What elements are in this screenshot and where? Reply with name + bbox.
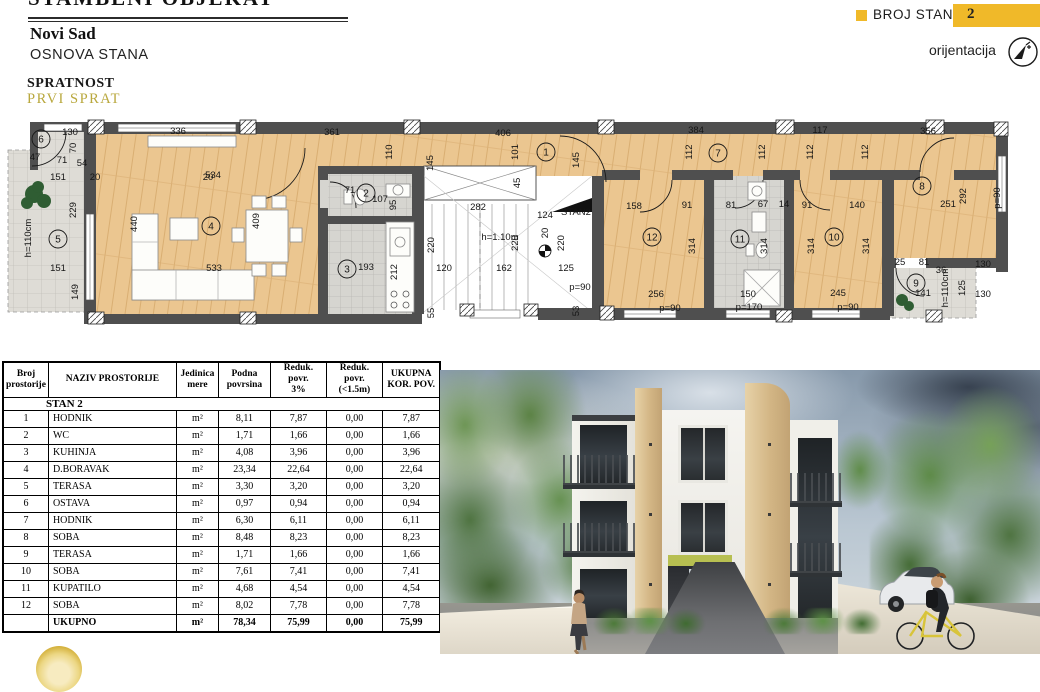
partial-logo-icon: [36, 646, 82, 692]
bushes-right: [758, 608, 888, 634]
dimension-label: p=90: [992, 187, 1003, 208]
table-cell: m²: [176, 529, 218, 546]
table-cell: HODNIK: [48, 410, 176, 427]
table-cell: 0,00: [326, 580, 382, 597]
table-cell: 6,30: [218, 512, 270, 529]
dimension-label: 145: [571, 152, 582, 168]
dimension-label: 81: [726, 200, 737, 211]
dimension-label: 81: [919, 257, 930, 268]
dimension-label: 70: [68, 143, 79, 154]
table-cell: 1,66: [270, 546, 326, 563]
dimension-label: 356: [920, 126, 936, 137]
table-cell: SOBA: [48, 563, 176, 580]
dimension-label: 130: [62, 127, 78, 138]
dimension-label: 406: [495, 128, 511, 139]
room-number: 4: [208, 222, 214, 233]
col-podna: Podna povrsina: [218, 362, 270, 397]
dimension-label: 95: [388, 200, 399, 211]
dimension-label: 245: [830, 288, 846, 299]
dimension-label: p=90: [659, 303, 680, 314]
table-cell: 0,00: [326, 478, 382, 495]
table-cell: HODNIK: [48, 512, 176, 529]
col-naziv: NAZIV PROSTORIJE: [48, 362, 176, 397]
table-cell: 0,00: [326, 512, 382, 529]
dimension-label: 384: [688, 125, 704, 136]
dimension-label: 91: [802, 200, 813, 211]
table-cell: 75,99: [270, 614, 326, 632]
col-jedinica: Jedinica mere: [176, 362, 218, 397]
table-cell: 0,00: [326, 614, 382, 632]
table-cell: 7,78: [382, 597, 440, 614]
table-cell: 4: [3, 461, 48, 478]
dimension-label: h=110cm: [23, 219, 34, 258]
dimension-label: 256: [648, 289, 664, 300]
table-cell: 4,08: [218, 444, 270, 461]
dimension-label: 124: [537, 210, 553, 221]
table-cell: 9: [3, 546, 48, 563]
dimension-label: 20: [203, 172, 214, 183]
table-cell: 1,66: [270, 427, 326, 444]
table-cell: 0,00: [326, 495, 382, 512]
room-number: 11: [735, 235, 746, 246]
dimension-label: 20: [90, 172, 101, 183]
dimension-label: 125: [957, 280, 968, 296]
table-cell: 7,78: [270, 597, 326, 614]
dimension-label: 158: [626, 201, 642, 212]
dimension-label: 533: [206, 263, 222, 274]
dimension-label: 53: [571, 306, 582, 317]
floor-label: SPRATNOST: [27, 76, 114, 92]
header-rule: [28, 17, 348, 19]
clipped-project-title: STAMBENI OBJEKAT: [28, 0, 358, 8]
table-cell: 6,11: [270, 512, 326, 529]
unit-number-label: BROJ STANA: [873, 7, 963, 22]
dimension-label: 145: [425, 155, 436, 171]
dimension-label: 141: [915, 288, 931, 299]
dimension-label: 25: [895, 257, 906, 268]
dimension-label: 71: [345, 185, 356, 196]
table-cell: 0,00: [326, 410, 382, 427]
dimension-label: 251: [940, 199, 956, 210]
unit-number-value: 2: [967, 6, 975, 23]
col-broj: Broj prostorije: [3, 362, 48, 397]
dimension-label: 440: [129, 216, 140, 232]
table-cell: 0,94: [382, 495, 440, 512]
table-cell: 22,64: [382, 461, 440, 478]
dimension-label: h=1.10m: [481, 232, 518, 243]
dimension-label: 67: [758, 199, 769, 210]
dimension-label: 314: [687, 238, 698, 254]
table-cell: 3,20: [270, 478, 326, 495]
table-cell: 1,66: [382, 427, 440, 444]
dimension-label: 220: [426, 237, 437, 253]
table-cell: 4,54: [270, 580, 326, 597]
table-cell: 1: [3, 410, 48, 427]
dimension-label: 110: [384, 144, 395, 159]
table-cell: 0,00: [326, 546, 382, 563]
table-cell: 10: [3, 563, 48, 580]
table-cell: 6,11: [382, 512, 440, 529]
facade-pillar-right: [745, 383, 790, 618]
table-cell: m²: [176, 410, 218, 427]
table-cell: OSTAVA: [48, 495, 176, 512]
dimension-label: p=170: [736, 302, 763, 313]
table-cell: m²: [176, 614, 218, 632]
dimension-label: 101: [510, 144, 521, 160]
dimension-label: 14: [779, 199, 790, 210]
table-cell: 8,23: [270, 529, 326, 546]
dimension-label: 361: [324, 127, 340, 138]
table-cell: 12: [3, 597, 48, 614]
col-ukupna: UKUPNA KOR. POV.: [382, 362, 440, 397]
dimension-label: 151: [50, 172, 66, 183]
table-cell: 78,34: [218, 614, 270, 632]
floor-value: PRVI SPRAT: [27, 91, 121, 108]
table-cell: m²: [176, 461, 218, 478]
table-cell: 0,00: [326, 597, 382, 614]
table-cell: KUHINJA: [48, 444, 176, 461]
dimension-label: 125: [558, 263, 574, 274]
table-cell: m²: [176, 427, 218, 444]
col-reduk3: Reduk. povr. 3%: [270, 362, 326, 397]
table-cell: WC: [48, 427, 176, 444]
table-cell: TERASA: [48, 478, 176, 495]
floor-plan: STAN2 1303363614063841173561101451011451…: [0, 112, 1040, 354]
dimension-label: 45: [512, 178, 523, 189]
bushes-left: [590, 608, 710, 634]
table-cell: 1,66: [382, 546, 440, 563]
dimension-label: 120: [436, 263, 452, 274]
table-cell: m²: [176, 444, 218, 461]
dimension-label: 292: [958, 188, 969, 204]
dimension-label: 71: [57, 155, 68, 166]
drawing-title: OSNOVA STANA: [30, 47, 149, 63]
dimension-label: 150: [740, 289, 756, 300]
table-cell: 7,61: [218, 563, 270, 580]
dimension-label: 314: [861, 238, 872, 254]
room-number: 2: [363, 189, 369, 200]
left-wing: [572, 415, 635, 618]
table-cell: 8,11: [218, 410, 270, 427]
table-cell: m²: [176, 597, 218, 614]
table-cell: 5: [3, 478, 48, 495]
table-cell: SOBA: [48, 597, 176, 614]
room-number: 7: [715, 149, 721, 160]
table-cell: 7: [3, 512, 48, 529]
area-table: Broj prostorije NAZIV PROSTORIJE Jedinic…: [2, 361, 441, 633]
table-cell: 8,48: [218, 529, 270, 546]
dimension-label: 336: [170, 126, 186, 137]
table-cell: TERASA: [48, 546, 176, 563]
dimension-label: 55: [426, 308, 437, 319]
section-row: STAN 2: [3, 397, 440, 410]
table-cell: 3,96: [270, 444, 326, 461]
room-number: 8: [919, 182, 925, 193]
table-cell: 3,20: [382, 478, 440, 495]
table-cell: 1,71: [218, 427, 270, 444]
table-cell: 3,30: [218, 478, 270, 495]
dimension-label: 112: [860, 144, 871, 159]
dimension-label: 282: [470, 202, 486, 213]
header-rule-2: [28, 21, 348, 22]
table-cell: 8,23: [382, 529, 440, 546]
room-number: 3: [344, 265, 350, 276]
table-cell: m²: [176, 478, 218, 495]
dimension-label: 212: [389, 264, 400, 280]
dimension-label: 229: [68, 202, 79, 218]
dimension-label: p=90: [837, 302, 858, 313]
fence-left: [440, 606, 578, 654]
table-cell: 8,02: [218, 597, 270, 614]
dimension-label: 112: [757, 144, 768, 159]
col-reduk15: Reduk. povr. (<1.5m): [326, 362, 382, 397]
dimension-label: 112: [805, 144, 816, 159]
table-cell: SOBA: [48, 529, 176, 546]
table-cell: 75,99: [382, 614, 440, 632]
table-cell: 0,97: [218, 495, 270, 512]
dimension-label: 314: [806, 238, 817, 254]
table-cell: KUPATILO: [48, 580, 176, 597]
table-cell: 0,00: [326, 461, 382, 478]
table-cell: m²: [176, 512, 218, 529]
dimension-label: 149: [70, 284, 81, 300]
level-mark-icon: [539, 245, 551, 257]
table-cell: 0,00: [326, 563, 382, 580]
table-cell: 0,00: [326, 529, 382, 546]
table-cell: 0,00: [326, 444, 382, 461]
table-cell: 22,64: [270, 461, 326, 478]
table-cell: UKUPNO: [48, 614, 176, 632]
dimension-label: 54: [77, 158, 88, 169]
dimension-label: 47: [30, 152, 41, 163]
table-cell: 0,94: [270, 495, 326, 512]
room-number: 9: [913, 279, 919, 290]
city-label: Novi Sad: [30, 24, 96, 44]
right-wing: [790, 420, 838, 618]
table-cell: 6: [3, 495, 48, 512]
dimension-label: 20: [540, 228, 551, 239]
table-cell: 3,96: [382, 444, 440, 461]
dimension-label: 314: [759, 238, 770, 254]
room-number: 5: [55, 235, 61, 246]
dimension-label: 409: [251, 213, 262, 229]
table-cell: 4,68: [218, 580, 270, 597]
table-cell: 4,54: [382, 580, 440, 597]
dimension-label: 130: [975, 289, 991, 300]
table-cell: m²: [176, 546, 218, 563]
table-cell: 7,41: [382, 563, 440, 580]
dimension-label: 117: [812, 125, 827, 136]
room-number: 6: [38, 135, 44, 146]
dimension-label: p=90: [569, 282, 590, 293]
table-cell: D.BORAVAK: [48, 461, 176, 478]
dimension-label: 91: [682, 200, 693, 211]
table-cell: 7,41: [270, 563, 326, 580]
dimension-label: h=110cm: [940, 269, 951, 308]
table-cell: m²: [176, 580, 218, 597]
table-cell: 0,00: [326, 427, 382, 444]
table-cell: m²: [176, 495, 218, 512]
table-cell: 7,87: [270, 410, 326, 427]
dimension-label: 162: [496, 263, 512, 274]
table-cell: [3, 614, 48, 632]
dimension-label: 193: [358, 262, 374, 273]
area-table-wrap: Broj prostorije NAZIV PROSTORIJE Jedinic…: [2, 361, 441, 633]
table-cell: m²: [176, 563, 218, 580]
room-number: 10: [828, 233, 840, 244]
stan-arrow-label: STAN2: [561, 207, 591, 218]
table-cell: 11: [3, 580, 48, 597]
table-cell: 3: [3, 444, 48, 461]
unit-number-badge: 2: [953, 4, 1040, 27]
table-cell: 1,71: [218, 546, 270, 563]
dimension-label: 151: [50, 263, 66, 274]
room-number: 12: [646, 233, 658, 244]
unit-number-icon: [856, 10, 867, 21]
building-3d-render: [440, 370, 1040, 654]
dimension-label: 112: [684, 144, 695, 159]
north-arrow-icon: [1005, 34, 1040, 70]
table-cell: 2: [3, 427, 48, 444]
facade-pillar-left: [635, 388, 662, 618]
table-cell: 23,34: [218, 461, 270, 478]
table-cell: 7,87: [382, 410, 440, 427]
dimension-label: 220: [556, 235, 567, 251]
dimension-label: 130: [975, 259, 991, 270]
orientation-label: orijentacija: [929, 42, 996, 58]
dimension-label: 140: [849, 200, 865, 211]
room-number: 1: [543, 148, 549, 159]
table-cell: 8: [3, 529, 48, 546]
